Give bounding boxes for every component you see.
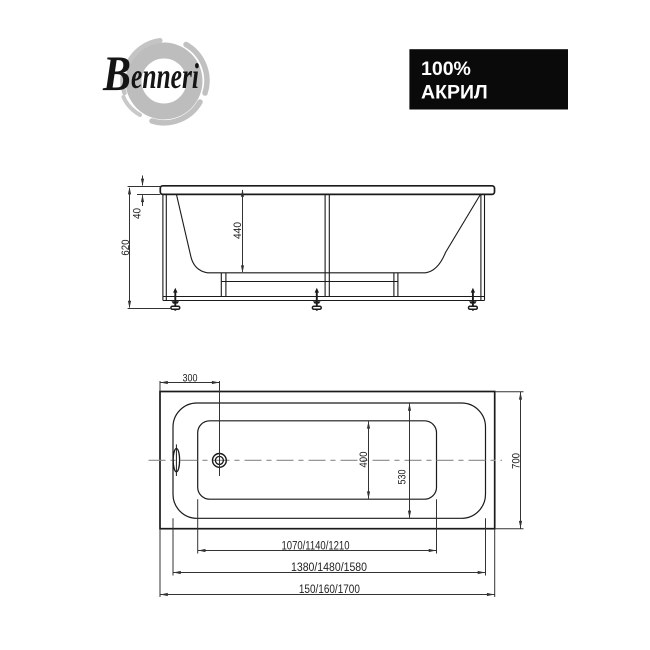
svg-text:700: 700 [510,453,522,469]
svg-text:620: 620 [120,240,132,256]
svg-text:100%: 100% [421,58,471,80]
svg-text:400: 400 [358,452,370,468]
svg-text:B: B [102,45,131,101]
svg-text:АКРИЛ: АКРИЛ [421,82,488,104]
svg-text:1070/1140/1210: 1070/1140/1210 [282,540,350,552]
svg-text:440: 440 [232,222,244,239]
svg-text:enneri: enneri [131,56,199,96]
svg-text:300: 300 [183,373,198,385]
svg-text:40: 40 [131,208,143,219]
svg-text:1380/1480/1580: 1380/1480/1580 [291,562,367,574]
svg-text:150/160/1700: 150/160/1700 [299,584,360,596]
svg-text:530: 530 [396,470,408,485]
